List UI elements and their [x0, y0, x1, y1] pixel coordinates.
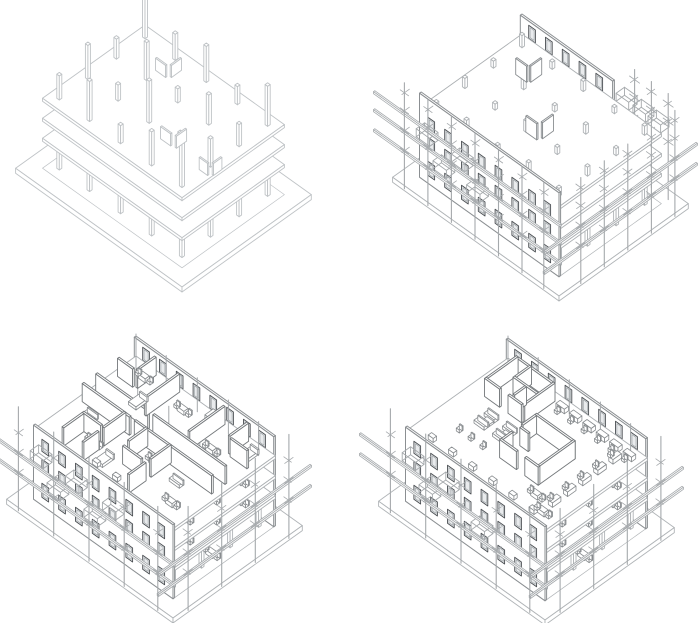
panel-envelope-construction — [350, 0, 700, 311]
architecture-axonometric-sheet — [0, 0, 700, 623]
panel-structural-frame — [0, 0, 350, 311]
panel-interior-partitions — [0, 312, 350, 623]
panel-fit-out-furnished — [350, 312, 700, 623]
